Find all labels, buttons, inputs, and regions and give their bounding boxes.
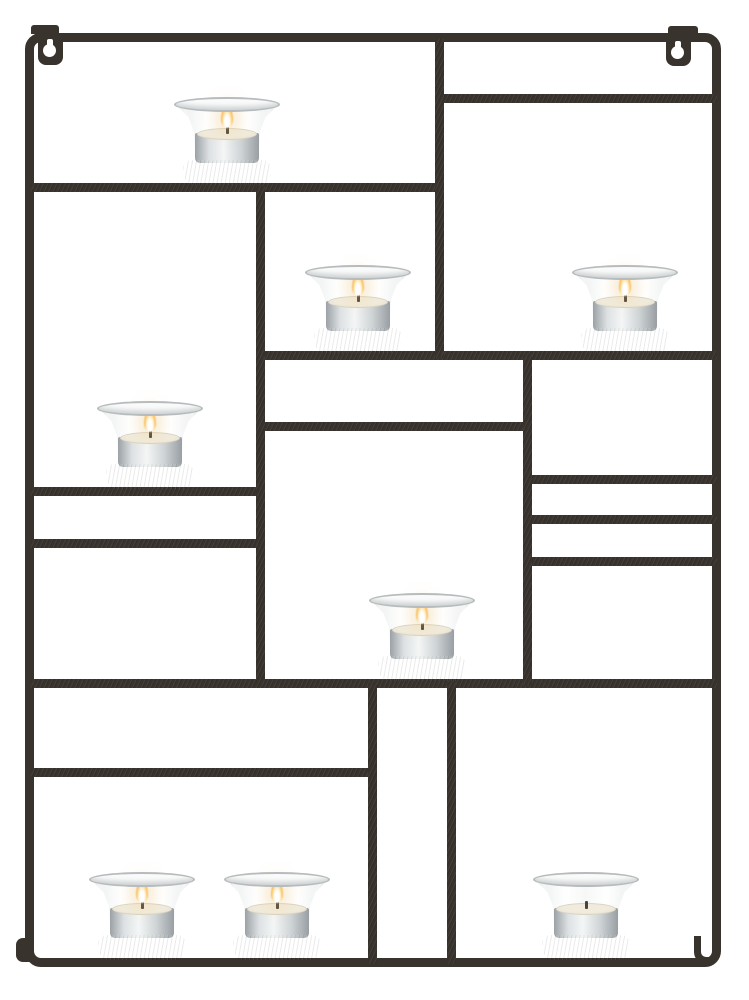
glass-rim bbox=[89, 872, 195, 887]
frame-bar-bottom-left-divider bbox=[30, 768, 377, 777]
frame-bar-left-lower-bar bbox=[30, 539, 265, 548]
cup-base bbox=[542, 935, 630, 960]
frame-bar-top-vertical bbox=[435, 38, 444, 358]
glass-rim bbox=[97, 401, 203, 416]
cup-base bbox=[98, 935, 186, 960]
candle-top-left bbox=[172, 97, 282, 185]
glass-rim bbox=[305, 265, 411, 280]
frame-bar-right-ladder-2 bbox=[523, 515, 717, 524]
frame-bar-right-ladder-3 bbox=[523, 557, 717, 566]
frame-bar-bottom-left-vertical bbox=[368, 682, 377, 964]
glass-rim bbox=[369, 593, 475, 608]
hanger-tab-left bbox=[31, 25, 59, 34]
keyhole-hole-left bbox=[43, 44, 56, 57]
cup-base bbox=[581, 328, 669, 353]
cup-base bbox=[314, 328, 402, 353]
hanger-tab-right bbox=[668, 26, 698, 34]
glass-rim bbox=[572, 265, 678, 280]
candle-bottom-right bbox=[531, 872, 641, 960]
cup-base bbox=[233, 935, 321, 960]
candle-bottom-left bbox=[87, 872, 197, 960]
frame-bar-bottom-right-vertical bbox=[447, 682, 456, 964]
cup-base bbox=[183, 160, 271, 185]
candle-mid-right bbox=[570, 265, 680, 353]
frame-bar-top-right-divider bbox=[435, 94, 717, 103]
cup-base bbox=[378, 656, 466, 681]
frame-bar-right-mid-vertical bbox=[523, 354, 532, 686]
glass-rim bbox=[533, 872, 639, 887]
tealight-wick bbox=[585, 901, 588, 909]
keyhole-hole-right bbox=[671, 46, 684, 59]
cup-base bbox=[106, 464, 194, 489]
candle-center-bottom bbox=[367, 593, 477, 681]
frame-bar-center-lower-bar bbox=[256, 422, 532, 431]
product-photo-candle-wall-sconce bbox=[0, 0, 749, 1000]
frame-bottom-right-hook bbox=[694, 936, 711, 964]
candle-mid-left bbox=[95, 401, 205, 489]
glass-rim bbox=[224, 872, 330, 887]
frame-bar-right-ladder-1 bbox=[523, 475, 717, 484]
candle-bottom-center bbox=[222, 872, 332, 960]
frame-bottom-left-foot bbox=[16, 938, 30, 962]
frame-bar-left-mid-vertical bbox=[256, 186, 265, 686]
glass-rim bbox=[174, 97, 280, 112]
candle-center bbox=[303, 265, 413, 353]
